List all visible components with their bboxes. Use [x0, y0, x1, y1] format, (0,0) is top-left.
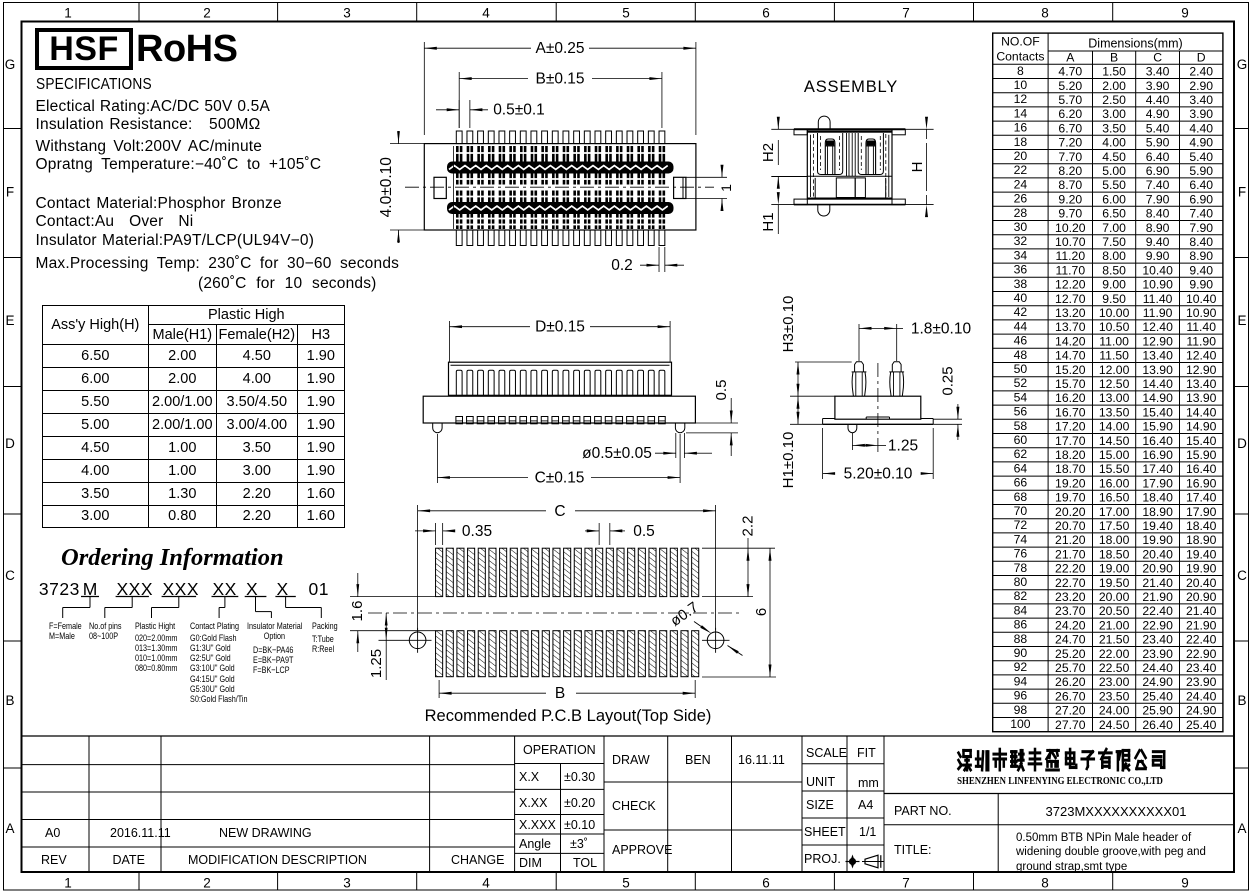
svg-text:15.70: 15.70 [1055, 377, 1086, 391]
svg-text:9: 9 [1181, 6, 1189, 21]
svg-text:18.70: 18.70 [1055, 462, 1086, 476]
svg-text:11.50: 11.50 [1099, 349, 1129, 363]
svg-text:22: 22 [1014, 163, 1028, 177]
svg-text:7.40: 7.40 [1189, 207, 1213, 221]
svg-text:24.40: 24.40 [1142, 661, 1173, 675]
svg-text:94: 94 [1014, 674, 1028, 688]
svg-text:6.40: 6.40 [1189, 178, 1213, 192]
svg-text:19.20: 19.20 [1055, 476, 1086, 490]
svg-text:20.50: 20.50 [1099, 604, 1130, 618]
svg-text:9.50: 9.50 [1102, 292, 1126, 306]
svg-text:9.00: 9.00 [1102, 278, 1126, 292]
svg-text:23.70: 23.70 [1055, 604, 1086, 618]
svg-text:3.90: 3.90 [1146, 79, 1170, 93]
svg-text:24.90: 24.90 [1142, 675, 1173, 689]
svg-text:52: 52 [1014, 376, 1028, 390]
svg-text:7.90: 7.90 [1146, 192, 1170, 206]
svg-text:8.00: 8.00 [1102, 249, 1126, 263]
svg-text:A: A [1237, 821, 1246, 836]
svg-text:27.20: 27.20 [1055, 704, 1086, 718]
svg-text:16.00: 16.00 [1099, 476, 1130, 490]
svg-text:5.90: 5.90 [1189, 164, 1213, 178]
svg-text:48: 48 [1014, 348, 1028, 362]
svg-text:Contacts: Contacts [996, 50, 1044, 64]
svg-text:5.90: 5.90 [1146, 136, 1170, 150]
svg-text:24.00: 24.00 [1099, 704, 1130, 718]
svg-text:60: 60 [1014, 433, 1028, 447]
svg-text:4.70: 4.70 [1058, 65, 1082, 79]
svg-text:88: 88 [1014, 632, 1028, 646]
svg-text:8.90: 8.90 [1146, 221, 1170, 235]
svg-text:11.90: 11.90 [1186, 334, 1216, 348]
svg-text:1.50: 1.50 [1102, 65, 1126, 79]
svg-text:ø0.7: ø0.7 [667, 599, 701, 630]
svg-text:23.40: 23.40 [1186, 661, 1217, 675]
svg-text:4.40: 4.40 [1146, 93, 1170, 107]
svg-text:8.50: 8.50 [1102, 263, 1126, 277]
svg-text:26.40: 26.40 [1142, 718, 1173, 732]
svg-text:32: 32 [1014, 234, 1028, 248]
svg-text:28: 28 [1014, 206, 1028, 220]
svg-text:26.70: 26.70 [1055, 689, 1086, 703]
svg-text:25.90: 25.90 [1142, 704, 1173, 718]
svg-text:1: 1 [64, 876, 72, 891]
svg-text:0.35: 0.35 [462, 523, 492, 540]
svg-text:16: 16 [1014, 121, 1028, 135]
svg-text:6.20: 6.20 [1058, 107, 1082, 121]
svg-text:38: 38 [1014, 277, 1028, 291]
svg-text:C: C [5, 568, 15, 583]
svg-text:22.90: 22.90 [1186, 647, 1217, 661]
svg-text:21.90: 21.90 [1186, 618, 1217, 632]
svg-text:10.20: 10.20 [1055, 221, 1086, 235]
svg-text:14.50: 14.50 [1099, 434, 1130, 448]
svg-text:9.40: 9.40 [1146, 235, 1170, 249]
svg-text:4.90: 4.90 [1146, 107, 1170, 121]
svg-text:0.5: 0.5 [633, 523, 655, 540]
svg-text:20.40: 20.40 [1186, 576, 1217, 590]
svg-text:21.90: 21.90 [1142, 590, 1173, 604]
svg-text:22.00: 22.00 [1099, 647, 1130, 661]
svg-text:30: 30 [1014, 220, 1028, 234]
svg-text:2.2: 2.2 [740, 516, 757, 537]
svg-text:17.20: 17.20 [1055, 420, 1086, 434]
svg-text:18.90: 18.90 [1186, 533, 1217, 547]
svg-text:14.90: 14.90 [1142, 391, 1173, 405]
svg-text:1.6: 1.6 [349, 601, 366, 622]
svg-text:17.70: 17.70 [1055, 434, 1086, 448]
svg-text:17.40: 17.40 [1142, 462, 1173, 476]
svg-text:18.40: 18.40 [1186, 519, 1217, 533]
svg-text:5: 5 [622, 876, 630, 891]
svg-text:19.00: 19.00 [1099, 562, 1130, 576]
svg-text:4.00: 4.00 [1102, 136, 1126, 150]
svg-text:12.70: 12.70 [1055, 292, 1086, 306]
svg-text:8.40: 8.40 [1146, 207, 1170, 221]
svg-text:5.00: 5.00 [1102, 164, 1126, 178]
svg-text:74: 74 [1014, 532, 1028, 546]
svg-text:14.70: 14.70 [1055, 349, 1086, 363]
svg-text:70: 70 [1014, 504, 1028, 518]
svg-text:7.00: 7.00 [1102, 221, 1126, 235]
svg-text:22.20: 22.20 [1055, 562, 1086, 576]
svg-text:4.40: 4.40 [1189, 121, 1213, 135]
svg-text:ASSEMBLY: ASSEMBLY [804, 78, 898, 96]
svg-text:24.70: 24.70 [1055, 633, 1086, 647]
svg-text:Dimensions(mm): Dimensions(mm) [1088, 37, 1182, 51]
svg-text:10.90: 10.90 [1142, 278, 1173, 292]
svg-text:6: 6 [762, 6, 770, 21]
svg-text:16.90: 16.90 [1186, 476, 1217, 490]
svg-text:25.70: 25.70 [1055, 661, 1086, 675]
svg-text:6: 6 [753, 608, 770, 616]
svg-text:A: A [5, 821, 14, 836]
svg-text:20.90: 20.90 [1142, 562, 1173, 576]
svg-text:23.40: 23.40 [1142, 633, 1173, 647]
svg-text:11.90: 11.90 [1143, 306, 1173, 320]
svg-text:21.20: 21.20 [1055, 533, 1086, 547]
svg-text:15.00: 15.00 [1099, 448, 1130, 462]
svg-text:18.00: 18.00 [1099, 533, 1130, 547]
svg-text:21.40: 21.40 [1142, 576, 1173, 590]
svg-text:2.90: 2.90 [1189, 79, 1213, 93]
svg-text:72: 72 [1014, 518, 1028, 532]
svg-text:19.70: 19.70 [1055, 491, 1086, 505]
svg-text:11.40: 11.40 [1143, 292, 1173, 306]
svg-text:10.50: 10.50 [1099, 320, 1130, 334]
svg-text:4: 4 [482, 6, 490, 21]
svg-text:34: 34 [1014, 248, 1028, 262]
svg-text:14.40: 14.40 [1186, 405, 1217, 419]
svg-text:17.50: 17.50 [1099, 519, 1130, 533]
svg-text:B: B [555, 685, 565, 702]
svg-text:6: 6 [762, 876, 770, 891]
svg-text:20: 20 [1014, 149, 1028, 163]
svg-text:25.40: 25.40 [1186, 718, 1217, 732]
svg-text:16.90: 16.90 [1142, 448, 1173, 462]
svg-text:0.25: 0.25 [940, 366, 957, 395]
svg-text:6.00: 6.00 [1102, 192, 1126, 206]
svg-text:13.50: 13.50 [1099, 405, 1130, 419]
svg-text:96: 96 [1014, 689, 1028, 703]
svg-text:3: 3 [343, 6, 351, 21]
svg-text:21.00: 21.00 [1099, 618, 1130, 632]
svg-text:46: 46 [1014, 334, 1028, 348]
svg-text:18.90: 18.90 [1142, 505, 1173, 519]
svg-text:14.40: 14.40 [1142, 377, 1173, 391]
svg-text:24.90: 24.90 [1186, 704, 1217, 718]
svg-text:3.90: 3.90 [1189, 107, 1213, 121]
svg-text:NO.OF: NO.OF [1001, 35, 1040, 49]
svg-text:22.40: 22.40 [1142, 604, 1173, 618]
svg-text:14.90: 14.90 [1186, 420, 1217, 434]
svg-text:6.70: 6.70 [1058, 121, 1082, 135]
svg-text:9.40: 9.40 [1189, 263, 1213, 277]
svg-text:12.40: 12.40 [1186, 349, 1217, 363]
svg-text:2: 2 [203, 876, 211, 891]
svg-text:12.90: 12.90 [1186, 363, 1217, 377]
svg-text:6.90: 6.90 [1146, 164, 1170, 178]
svg-text:22.70: 22.70 [1055, 576, 1086, 590]
svg-text:0.5: 0.5 [713, 380, 730, 401]
svg-text:D±0.15: D±0.15 [535, 319, 585, 336]
svg-text:13.70: 13.70 [1055, 320, 1086, 334]
svg-text:16.40: 16.40 [1142, 434, 1173, 448]
svg-text:20.00: 20.00 [1099, 590, 1130, 604]
svg-text:23.20: 23.20 [1055, 590, 1086, 604]
svg-text:9.90: 9.90 [1146, 249, 1170, 263]
svg-text:16.40: 16.40 [1186, 462, 1217, 476]
svg-text:26: 26 [1014, 192, 1028, 206]
svg-text:36: 36 [1014, 263, 1028, 277]
svg-text:8.90: 8.90 [1189, 249, 1213, 263]
svg-text:5.40: 5.40 [1189, 150, 1213, 164]
svg-text:8: 8 [1041, 6, 1049, 21]
svg-text:11.00: 11.00 [1099, 334, 1129, 348]
svg-text:12.50: 12.50 [1099, 377, 1130, 391]
svg-text:6.90: 6.90 [1189, 192, 1213, 206]
svg-text:7.90: 7.90 [1189, 221, 1213, 235]
svg-text:1: 1 [718, 184, 734, 192]
svg-text:A: A [1066, 51, 1075, 65]
svg-text:2.40: 2.40 [1189, 65, 1213, 79]
svg-text:4: 4 [482, 876, 490, 891]
svg-text:2.50: 2.50 [1102, 93, 1126, 107]
svg-text:19.90: 19.90 [1186, 562, 1217, 576]
svg-text:14.20: 14.20 [1055, 334, 1086, 348]
svg-text:12.40: 12.40 [1142, 320, 1173, 334]
svg-text:H1±0.10: H1±0.10 [780, 432, 797, 489]
svg-text:4.50: 4.50 [1102, 150, 1126, 164]
svg-text:15.90: 15.90 [1186, 448, 1217, 462]
svg-text:24.20: 24.20 [1055, 618, 1086, 632]
svg-text:68: 68 [1014, 490, 1028, 504]
svg-text:22.50: 22.50 [1099, 661, 1130, 675]
svg-text:13.20: 13.20 [1055, 306, 1086, 320]
svg-text:42: 42 [1014, 305, 1028, 319]
svg-text:5.40: 5.40 [1146, 121, 1170, 135]
svg-text:D: D [5, 436, 15, 451]
svg-text:E: E [1237, 313, 1246, 328]
svg-text:100: 100 [1010, 717, 1031, 731]
svg-text:10.40: 10.40 [1142, 263, 1173, 277]
svg-text:12.90: 12.90 [1142, 334, 1173, 348]
svg-text:84: 84 [1014, 603, 1028, 617]
svg-text:64: 64 [1014, 461, 1028, 475]
svg-text:8: 8 [1017, 64, 1024, 78]
svg-text:10.40: 10.40 [1186, 292, 1217, 306]
svg-text:3.40: 3.40 [1146, 65, 1170, 79]
svg-text:Recommended P.C.B Layout(Top: Recommended P.C.B Layout(Top Side) [425, 707, 712, 725]
svg-text:18.40: 18.40 [1142, 491, 1173, 505]
svg-text:B: B [1110, 51, 1118, 65]
svg-text:62: 62 [1014, 447, 1028, 461]
svg-text:D: D [1197, 51, 1206, 65]
svg-text:14.00: 14.00 [1099, 420, 1130, 434]
svg-text:10.70: 10.70 [1055, 235, 1086, 249]
svg-text:23.00: 23.00 [1099, 675, 1130, 689]
svg-text:7.50: 7.50 [1102, 235, 1126, 249]
svg-text:20.90: 20.90 [1186, 590, 1217, 604]
svg-text:B: B [1237, 693, 1246, 708]
svg-text:78: 78 [1014, 561, 1028, 575]
svg-text:66: 66 [1014, 476, 1028, 490]
svg-text:C±0.15: C±0.15 [535, 470, 585, 487]
svg-text:16.20: 16.20 [1055, 391, 1086, 405]
svg-text:A±0.25: A±0.25 [535, 40, 584, 57]
svg-text:50: 50 [1014, 362, 1028, 376]
svg-text:92: 92 [1014, 660, 1028, 674]
svg-text:19.90: 19.90 [1142, 533, 1173, 547]
svg-text:10: 10 [1014, 78, 1028, 92]
svg-text:17.90: 17.90 [1186, 505, 1217, 519]
svg-text:7.40: 7.40 [1146, 178, 1170, 192]
svg-text:13.40: 13.40 [1186, 377, 1217, 391]
svg-text:21.50: 21.50 [1099, 633, 1130, 647]
svg-text:23.50: 23.50 [1099, 689, 1130, 703]
svg-text:19.50: 19.50 [1099, 576, 1130, 590]
svg-text:G: G [5, 57, 16, 72]
svg-text:3.00: 3.00 [1102, 107, 1126, 121]
svg-text:15.90: 15.90 [1142, 420, 1173, 434]
svg-text:76: 76 [1014, 547, 1028, 561]
svg-text:3.40: 3.40 [1189, 93, 1213, 107]
svg-text:11.40: 11.40 [1186, 320, 1216, 334]
svg-text:15.50: 15.50 [1099, 462, 1130, 476]
svg-text:40: 40 [1014, 291, 1028, 305]
svg-text:9.20: 9.20 [1058, 192, 1082, 206]
svg-text:H: H [909, 162, 926, 173]
svg-text:22.90: 22.90 [1142, 618, 1173, 632]
svg-text:15.40: 15.40 [1186, 434, 1217, 448]
svg-text:90: 90 [1014, 646, 1028, 660]
svg-text:8.20: 8.20 [1058, 164, 1082, 178]
svg-text:9.70: 9.70 [1058, 207, 1082, 221]
svg-text:6.40: 6.40 [1146, 150, 1170, 164]
svg-text:86: 86 [1014, 618, 1028, 632]
svg-text:8.70: 8.70 [1058, 178, 1082, 192]
svg-text:10.90: 10.90 [1186, 306, 1217, 320]
svg-text:19.40: 19.40 [1142, 519, 1173, 533]
svg-text:1: 1 [64, 6, 72, 21]
svg-text:13.90: 13.90 [1186, 391, 1217, 405]
svg-text:7: 7 [902, 876, 910, 891]
svg-text:5.70: 5.70 [1058, 93, 1082, 107]
svg-text:F: F [1238, 185, 1246, 200]
svg-text:H3±0.10: H3±0.10 [780, 296, 797, 353]
svg-text:20.20: 20.20 [1055, 505, 1086, 519]
svg-text:D: D [1237, 436, 1247, 451]
svg-text:13.40: 13.40 [1142, 349, 1173, 363]
svg-text:27.70: 27.70 [1055, 718, 1086, 732]
svg-text:C: C [1237, 568, 1247, 583]
svg-text:12.00: 12.00 [1099, 363, 1130, 377]
svg-text:18: 18 [1014, 135, 1028, 149]
svg-text:18.50: 18.50 [1099, 547, 1130, 561]
svg-text:C: C [554, 503, 565, 520]
svg-text:5.50: 5.50 [1102, 178, 1126, 192]
svg-text:8.40: 8.40 [1189, 235, 1213, 249]
svg-text:82: 82 [1014, 589, 1028, 603]
svg-text:15.40: 15.40 [1142, 405, 1173, 419]
svg-text:E: E [5, 313, 14, 328]
svg-text:12: 12 [1014, 92, 1028, 106]
svg-text:4.90: 4.90 [1189, 136, 1213, 150]
svg-text:4.0±0.10: 4.0±0.10 [378, 157, 395, 218]
svg-text:19.40: 19.40 [1186, 547, 1217, 561]
svg-text:0.2: 0.2 [611, 257, 633, 274]
svg-text:54: 54 [1014, 390, 1028, 404]
svg-text:7: 7 [902, 6, 910, 21]
svg-text:10.00: 10.00 [1099, 306, 1130, 320]
svg-text:21.70: 21.70 [1055, 547, 1086, 561]
svg-text:44: 44 [1014, 319, 1028, 333]
svg-text:3: 3 [343, 876, 351, 891]
svg-text:17.40: 17.40 [1186, 491, 1217, 505]
svg-text:5: 5 [622, 6, 630, 21]
svg-text:C: C [1153, 51, 1162, 65]
svg-text:20.40: 20.40 [1142, 547, 1173, 561]
svg-text:18.20: 18.20 [1055, 448, 1086, 462]
svg-text:24.40: 24.40 [1186, 689, 1217, 703]
svg-text:F: F [6, 185, 14, 200]
svg-text:23.90: 23.90 [1186, 675, 1217, 689]
svg-text:12.20: 12.20 [1055, 278, 1086, 292]
svg-text:8: 8 [1041, 876, 1049, 891]
svg-text:22.40: 22.40 [1186, 633, 1217, 647]
svg-text:25.20: 25.20 [1055, 647, 1086, 661]
svg-text:3.50: 3.50 [1102, 121, 1126, 135]
svg-text:20.70: 20.70 [1055, 519, 1086, 533]
svg-text:13.00: 13.00 [1099, 391, 1130, 405]
svg-text:23.90: 23.90 [1142, 647, 1173, 661]
svg-text:56: 56 [1014, 405, 1028, 419]
svg-text:25.40: 25.40 [1142, 689, 1173, 703]
svg-text:11.20: 11.20 [1056, 249, 1086, 263]
svg-text:6.50: 6.50 [1102, 207, 1126, 221]
svg-text:2: 2 [203, 6, 211, 21]
svg-text:1.25: 1.25 [888, 437, 918, 454]
svg-text:ø0.5±0.05: ø0.5±0.05 [582, 445, 652, 462]
svg-text:26.20: 26.20 [1055, 675, 1086, 689]
svg-text:16.70: 16.70 [1055, 405, 1086, 419]
svg-text:24: 24 [1014, 177, 1028, 191]
svg-text:7.70: 7.70 [1058, 150, 1082, 164]
svg-text:58: 58 [1014, 419, 1028, 433]
svg-text:0.5±0.1: 0.5±0.1 [493, 102, 545, 119]
svg-text:H1: H1 [760, 212, 777, 231]
svg-text:13.90: 13.90 [1142, 363, 1173, 377]
svg-text:17.00: 17.00 [1099, 505, 1130, 519]
svg-text:15.20: 15.20 [1055, 363, 1086, 377]
svg-text:B: B [5, 693, 14, 708]
svg-text:14: 14 [1014, 106, 1028, 120]
svg-text:1.8±0.10: 1.8±0.10 [911, 321, 972, 338]
svg-text:5.20±0.10: 5.20±0.10 [844, 466, 913, 483]
svg-text:24.50: 24.50 [1099, 718, 1130, 732]
svg-text:5.20: 5.20 [1058, 79, 1082, 93]
svg-text:98: 98 [1014, 703, 1028, 717]
svg-text:80: 80 [1014, 575, 1028, 589]
svg-text:2.00: 2.00 [1102, 79, 1126, 93]
svg-text:H2: H2 [760, 143, 777, 162]
svg-text:G: G [1237, 57, 1248, 72]
svg-text:17.90: 17.90 [1142, 476, 1173, 490]
svg-text:1.25: 1.25 [368, 649, 385, 678]
svg-text:9.90: 9.90 [1189, 278, 1213, 292]
svg-text:B±0.15: B±0.15 [535, 71, 584, 88]
svg-text:11.70: 11.70 [1056, 263, 1086, 277]
